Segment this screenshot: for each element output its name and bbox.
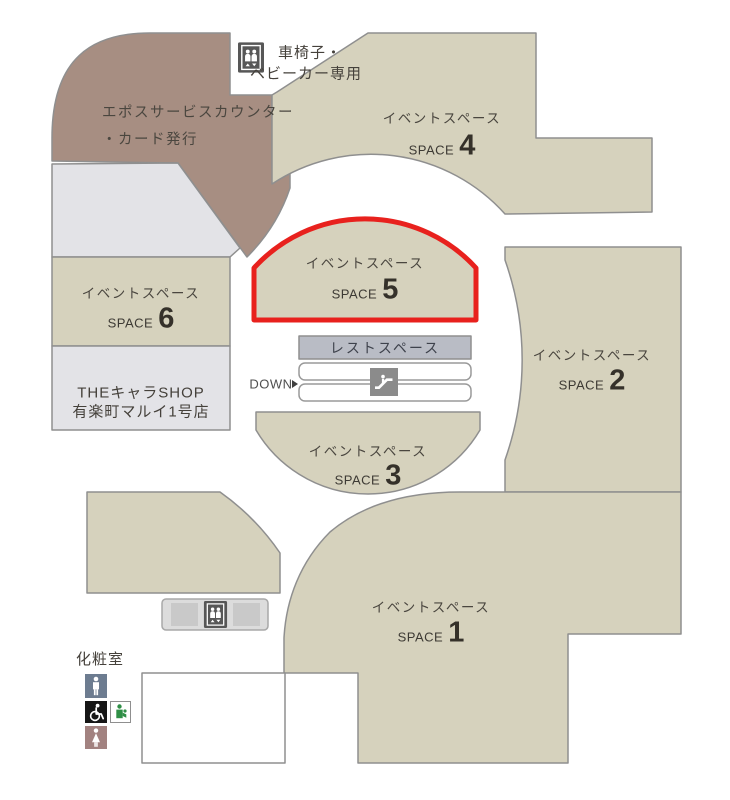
space-1-space-word: SPACE xyxy=(398,630,444,645)
elevator-icon xyxy=(202,601,229,628)
space-6-label: イベントスペース xyxy=(82,282,200,302)
space-2-number-value: 2 xyxy=(609,369,625,394)
down-label: DOWN xyxy=(249,377,292,392)
wheelchair-note-line2: ベビーカー専用 xyxy=(250,63,362,84)
lower-left-region xyxy=(87,492,280,593)
space-5-label: イベントスペース xyxy=(306,252,424,272)
space-1-number: SPACE 1 xyxy=(398,621,465,646)
space-4-number: SPACE 4 xyxy=(409,134,476,159)
space-6-number: SPACE 6 xyxy=(108,307,175,332)
elevator-bank-cell-left xyxy=(171,603,198,626)
space-5-number-value: 5 xyxy=(382,278,398,303)
escalator-icon xyxy=(370,368,398,396)
space-6-number-value: 6 xyxy=(158,307,174,332)
space-3-label: イベントスペース xyxy=(309,440,427,460)
space-1-number-value: 1 xyxy=(448,621,464,646)
wheelchair-restroom-icon xyxy=(85,701,107,723)
space-5-number: SPACE 5 xyxy=(332,278,399,303)
space-2-space-word: SPACE xyxy=(559,378,605,393)
epos-counter-line1: エポスサービスカウンター xyxy=(102,100,294,127)
floor-map: 車椅子・ ベビーカー専用 エポスサービスカウンター ・カード発行 イベントスペー… xyxy=(0,0,730,800)
space-1-label: イベントスペース xyxy=(372,596,490,616)
space-2-label: イベントスペース xyxy=(533,344,651,364)
wheelchair-note-line1: 車椅子・ xyxy=(278,42,342,63)
male-restroom-icon xyxy=(85,674,107,698)
elevator-bank-cell-right xyxy=(233,603,260,626)
epos-counter-label: エポスサービスカウンター ・カード発行 xyxy=(102,100,294,154)
down-arrow-icon xyxy=(292,380,298,388)
utility-room-region xyxy=(142,673,285,763)
space-4-space-word: SPACE xyxy=(409,143,455,158)
space-5-space-word: SPACE xyxy=(332,287,378,302)
baby-care-icon xyxy=(110,701,131,723)
space-4-number-value: 4 xyxy=(459,134,475,159)
space-1-region xyxy=(284,492,681,763)
chara-shop-line2: 有楽町マルイ1号店 xyxy=(72,401,209,422)
space-3-space-word: SPACE xyxy=(335,473,381,488)
space-2-number: SPACE 2 xyxy=(559,369,626,394)
chara-shop-line1: THEキャラSHOP xyxy=(77,382,205,403)
space-3-number: SPACE 3 xyxy=(335,464,402,489)
epos-counter-line2: ・カード発行 xyxy=(102,127,294,154)
space-4-label: イベントスペース xyxy=(383,107,501,127)
rest-space-label: レストスペース xyxy=(330,338,440,358)
space-3-number-value: 3 xyxy=(385,464,401,489)
space-6-space-word: SPACE xyxy=(108,316,154,331)
female-restroom-icon xyxy=(85,726,107,749)
restroom-label: 化粧室 xyxy=(76,648,124,669)
